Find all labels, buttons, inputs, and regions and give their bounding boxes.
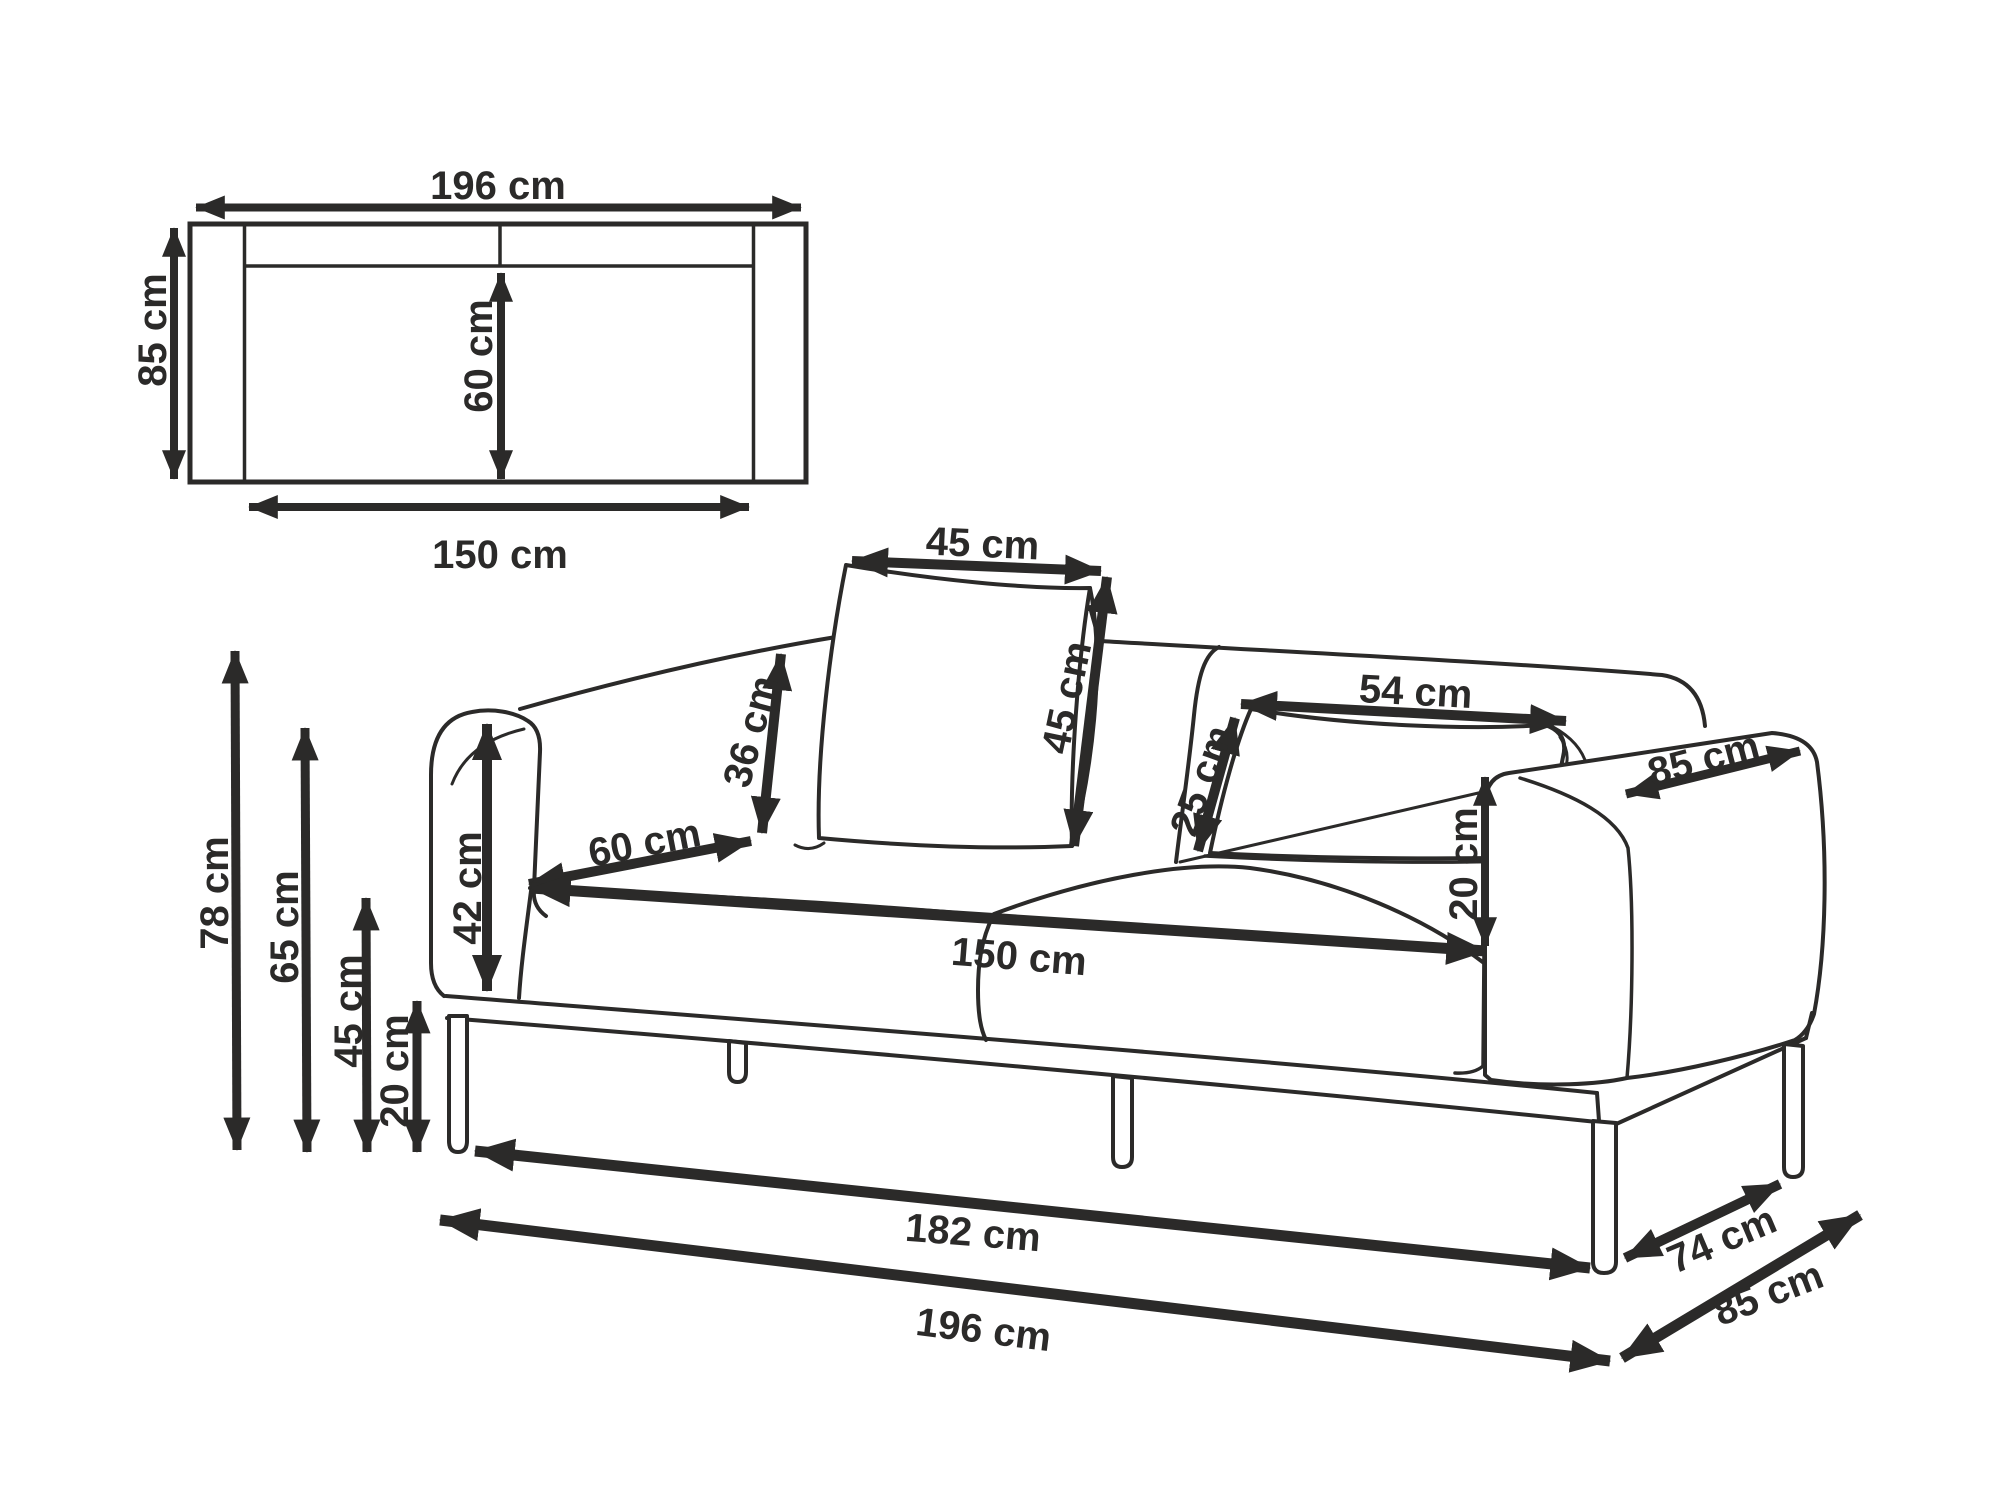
- svg-text:20 cm: 20 cm: [1442, 807, 1486, 920]
- svg-text:65 cm: 65 cm: [263, 870, 307, 983]
- svg-text:78 cm: 78 cm: [193, 836, 237, 949]
- svg-text:20 cm: 20 cm: [373, 1014, 417, 1127]
- svg-text:54 cm: 54 cm: [1358, 667, 1474, 717]
- svg-text:60 cm: 60 cm: [457, 299, 501, 412]
- svg-text:150 cm: 150 cm: [432, 533, 568, 577]
- svg-text:45 cm: 45 cm: [925, 520, 1040, 569]
- svg-text:42 cm: 42 cm: [446, 831, 490, 944]
- svg-text:196 cm: 196 cm: [430, 164, 566, 208]
- svg-text:85 cm: 85 cm: [131, 273, 175, 386]
- svg-text:45 cm: 45 cm: [327, 954, 371, 1067]
